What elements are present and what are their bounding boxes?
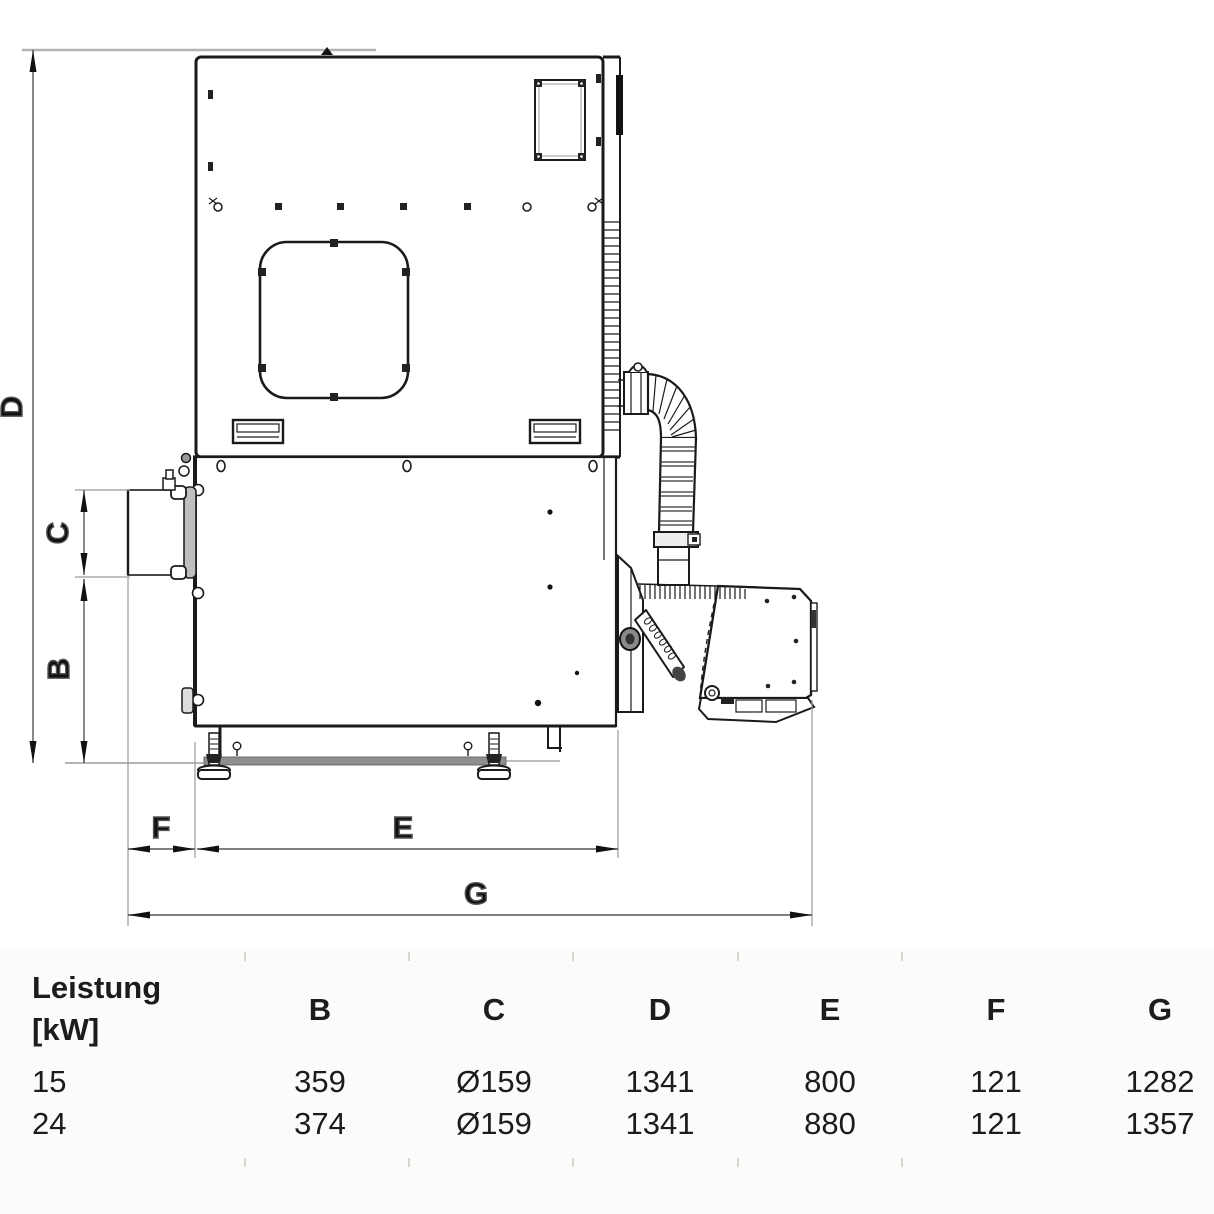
inspection-door xyxy=(258,239,410,401)
table-tick xyxy=(572,952,574,961)
table-header-power-line1: Leistung xyxy=(32,970,161,1006)
flexible-hose xyxy=(648,374,700,585)
adjustable-foot-left xyxy=(198,733,230,779)
hinge-rib-strip xyxy=(603,222,620,430)
base-screws xyxy=(233,742,472,756)
dim-label-f: F xyxy=(152,810,171,845)
table-row-24-e: 880 xyxy=(804,1106,856,1142)
table-tick xyxy=(737,952,739,961)
dim-label-d: D xyxy=(0,396,29,418)
dimension-e: E xyxy=(197,810,618,853)
table-row-24-power: 24 xyxy=(32,1106,66,1142)
dim-label-b: B xyxy=(41,658,76,680)
boiler-dimension-drawing: D C B F xyxy=(0,0,1214,948)
dimension-d: D xyxy=(0,50,37,763)
screenshot-root: D C B F xyxy=(0,0,1214,1214)
table-tick xyxy=(901,952,903,961)
table-header-d: D xyxy=(649,992,671,1028)
dimension-b: B xyxy=(41,579,88,763)
flue-outlet-stub xyxy=(128,470,196,579)
latch-detail xyxy=(182,454,191,463)
table-header-f: F xyxy=(987,992,1006,1028)
table-row-15-c: Ø159 xyxy=(456,1064,532,1100)
dim-label-e: E xyxy=(393,810,414,845)
table-tick xyxy=(408,952,410,961)
table-tick xyxy=(244,952,246,961)
dimension-table: Leistung [kW] B C D E F G 15 359 Ø159 13… xyxy=(0,948,1214,1214)
pellet-burner xyxy=(620,584,817,722)
dimension-c: C xyxy=(40,490,88,575)
base-rail xyxy=(204,757,506,765)
dimension-f: F xyxy=(128,810,195,853)
table-tick xyxy=(244,1158,246,1167)
table-tick xyxy=(737,1158,739,1167)
table-row-15-b: 359 xyxy=(294,1064,346,1100)
table-tick xyxy=(408,1158,410,1167)
adjustable-foot-right xyxy=(478,733,510,779)
table-header-power-line2: [kW] xyxy=(32,1012,99,1048)
table-row-24-b: 374 xyxy=(294,1106,346,1142)
table-row-24-d: 1341 xyxy=(626,1106,695,1142)
table-tick xyxy=(572,1158,574,1167)
table-row-15-g: 1282 xyxy=(1126,1064,1195,1100)
table-tick xyxy=(901,1158,903,1167)
table-row-15-e: 800 xyxy=(804,1064,856,1100)
top-right-access-panel xyxy=(535,80,585,160)
door-handle-right xyxy=(530,420,580,443)
table-row-24-c: Ø159 xyxy=(456,1106,532,1142)
table-row-24-g: 1357 xyxy=(1126,1106,1195,1142)
right-edge-dark-bar xyxy=(616,75,623,135)
table-row-15-power: 15 xyxy=(32,1064,66,1100)
table-row-15-d: 1341 xyxy=(626,1064,695,1100)
dimension-g: G xyxy=(128,876,812,919)
flue-flange xyxy=(184,487,196,578)
dim-label-c: C xyxy=(40,522,75,544)
table-row-24-f: 121 xyxy=(970,1106,1022,1142)
table-header-e: E xyxy=(820,992,841,1028)
base-frame xyxy=(198,726,562,779)
table-row-15-f: 121 xyxy=(970,1064,1022,1100)
table-header-b: B xyxy=(309,992,331,1028)
dim-label-g: G xyxy=(464,876,488,911)
table-header-g: G xyxy=(1148,992,1172,1028)
table-header-c: C xyxy=(483,992,505,1028)
lower-cabinet-panel xyxy=(179,454,616,727)
door-handle-left xyxy=(233,420,283,443)
hose-connector xyxy=(618,363,648,414)
lower-left-fitting xyxy=(182,688,193,713)
boiler-body xyxy=(128,57,817,779)
